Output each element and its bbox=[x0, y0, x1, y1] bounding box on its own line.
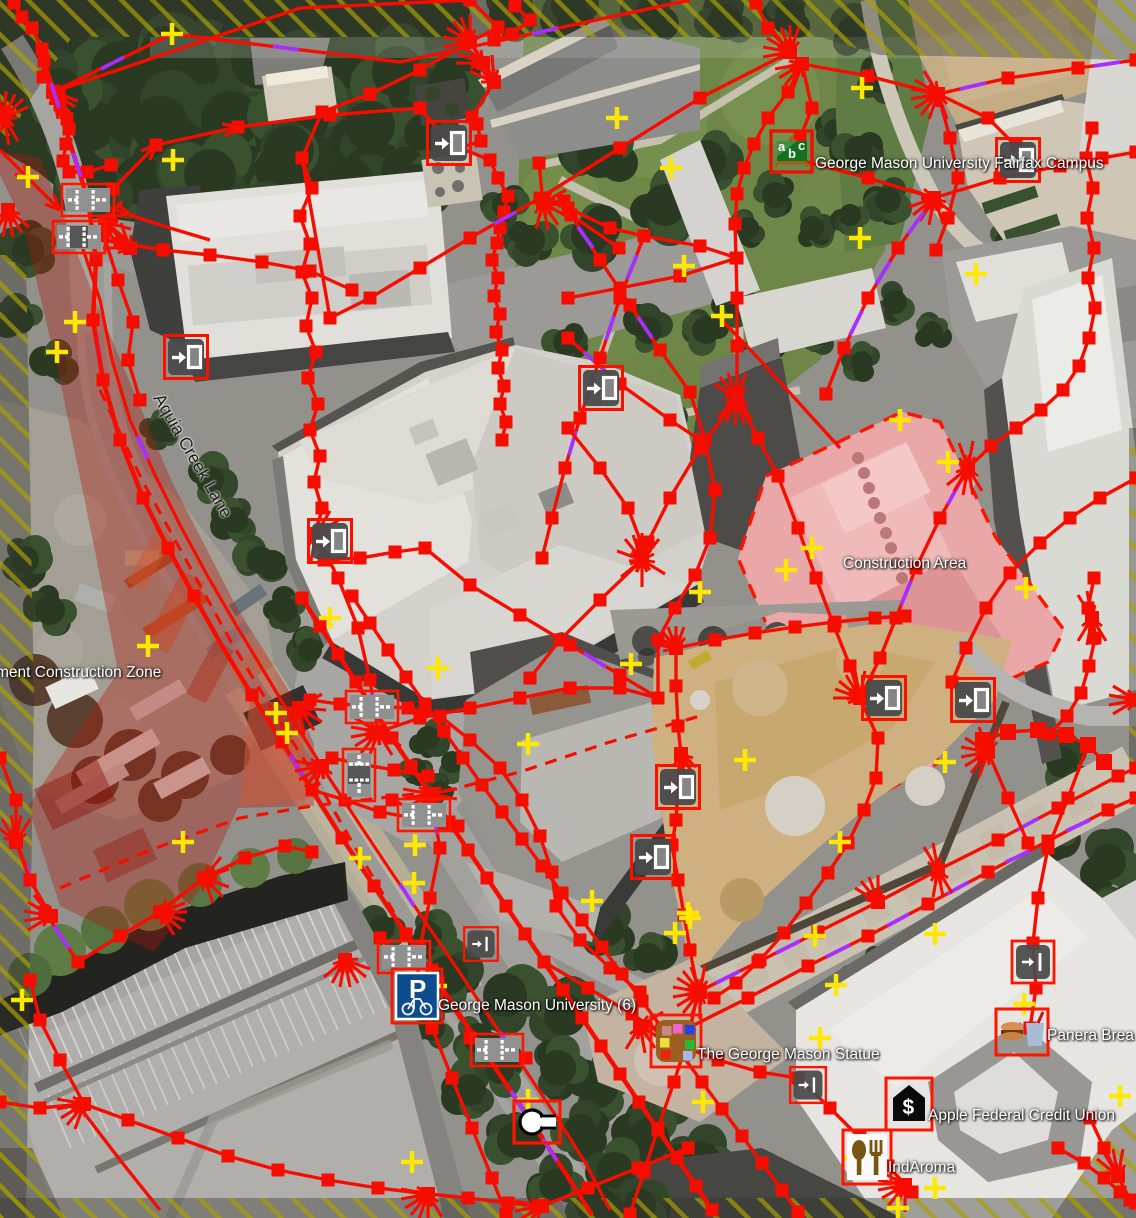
svg-text:c: c bbox=[798, 138, 805, 153]
svg-text:The George Mason Statue: The George Mason Statue bbox=[697, 1046, 880, 1063]
svg-text:Apple Federal Credit Union: Apple Federal Credit Union bbox=[928, 1107, 1115, 1124]
svg-text:ment Construction Zone: ment Construction Zone bbox=[0, 664, 161, 681]
svg-text:Panera Brea: Panera Brea bbox=[1047, 1027, 1134, 1044]
svg-text:$: $ bbox=[903, 1096, 915, 1119]
svg-text:a: a bbox=[778, 139, 786, 154]
svg-text:b: b bbox=[788, 146, 796, 161]
svg-text:George Mason University (6): George Mason University (6) bbox=[438, 997, 636, 1014]
svg-text:George Mason University Fairfa: George Mason University Fairfax Campus bbox=[815, 155, 1104, 172]
svg-text:Construction Area: Construction Area bbox=[843, 555, 967, 572]
svg-text:IndAroma: IndAroma bbox=[888, 1159, 956, 1176]
